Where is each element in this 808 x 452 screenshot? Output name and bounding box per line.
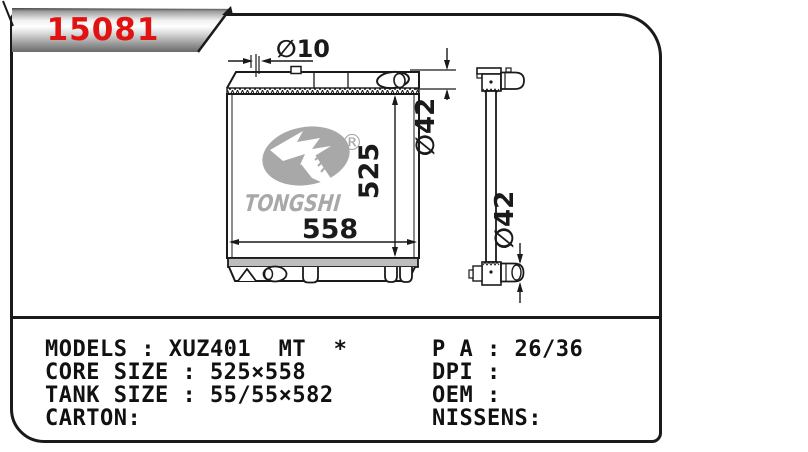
spec-column-left: MODELS : XUZ401 MT * CORE SIZE : 525×558…: [45, 338, 347, 430]
spec-core-size: CORE SIZE : 525×558: [45, 361, 347, 384]
filler-neck-label: ∅10: [276, 35, 330, 63]
badge-end-line: [198, 6, 233, 52]
spec-dpi: DPI :: [432, 361, 583, 384]
spec-models: MODELS : XUZ401 MT *: [45, 338, 347, 361]
dimension-side-pipe: ∅42: [490, 191, 523, 303]
dimension-filler-neck: ∅10: [228, 35, 330, 68]
core-height-label: 525: [354, 143, 385, 199]
spec-column-right: P A : 26/36 DPI : OEM : NISSENS:: [432, 338, 583, 430]
spec-nissens: NISSENS:: [432, 407, 583, 430]
dimension-top-pipe: ∅42: [410, 48, 456, 156]
spec-carton: CARTON:: [45, 407, 347, 430]
spec-tank-size: TANK SIZE : 55/55×582: [45, 384, 347, 407]
top-pipe-label: ∅42: [411, 98, 441, 156]
corner-stroke: [3, 1, 13, 26]
spec-sheet: 15081: [0, 0, 808, 452]
radiator-side-view: [469, 68, 524, 285]
spec-oem: OEM :: [432, 384, 583, 407]
core-width-label: 558: [302, 214, 358, 245]
spec-pa: P A : 26/36: [432, 338, 583, 361]
side-pipe-label: ∅42: [490, 191, 520, 249]
